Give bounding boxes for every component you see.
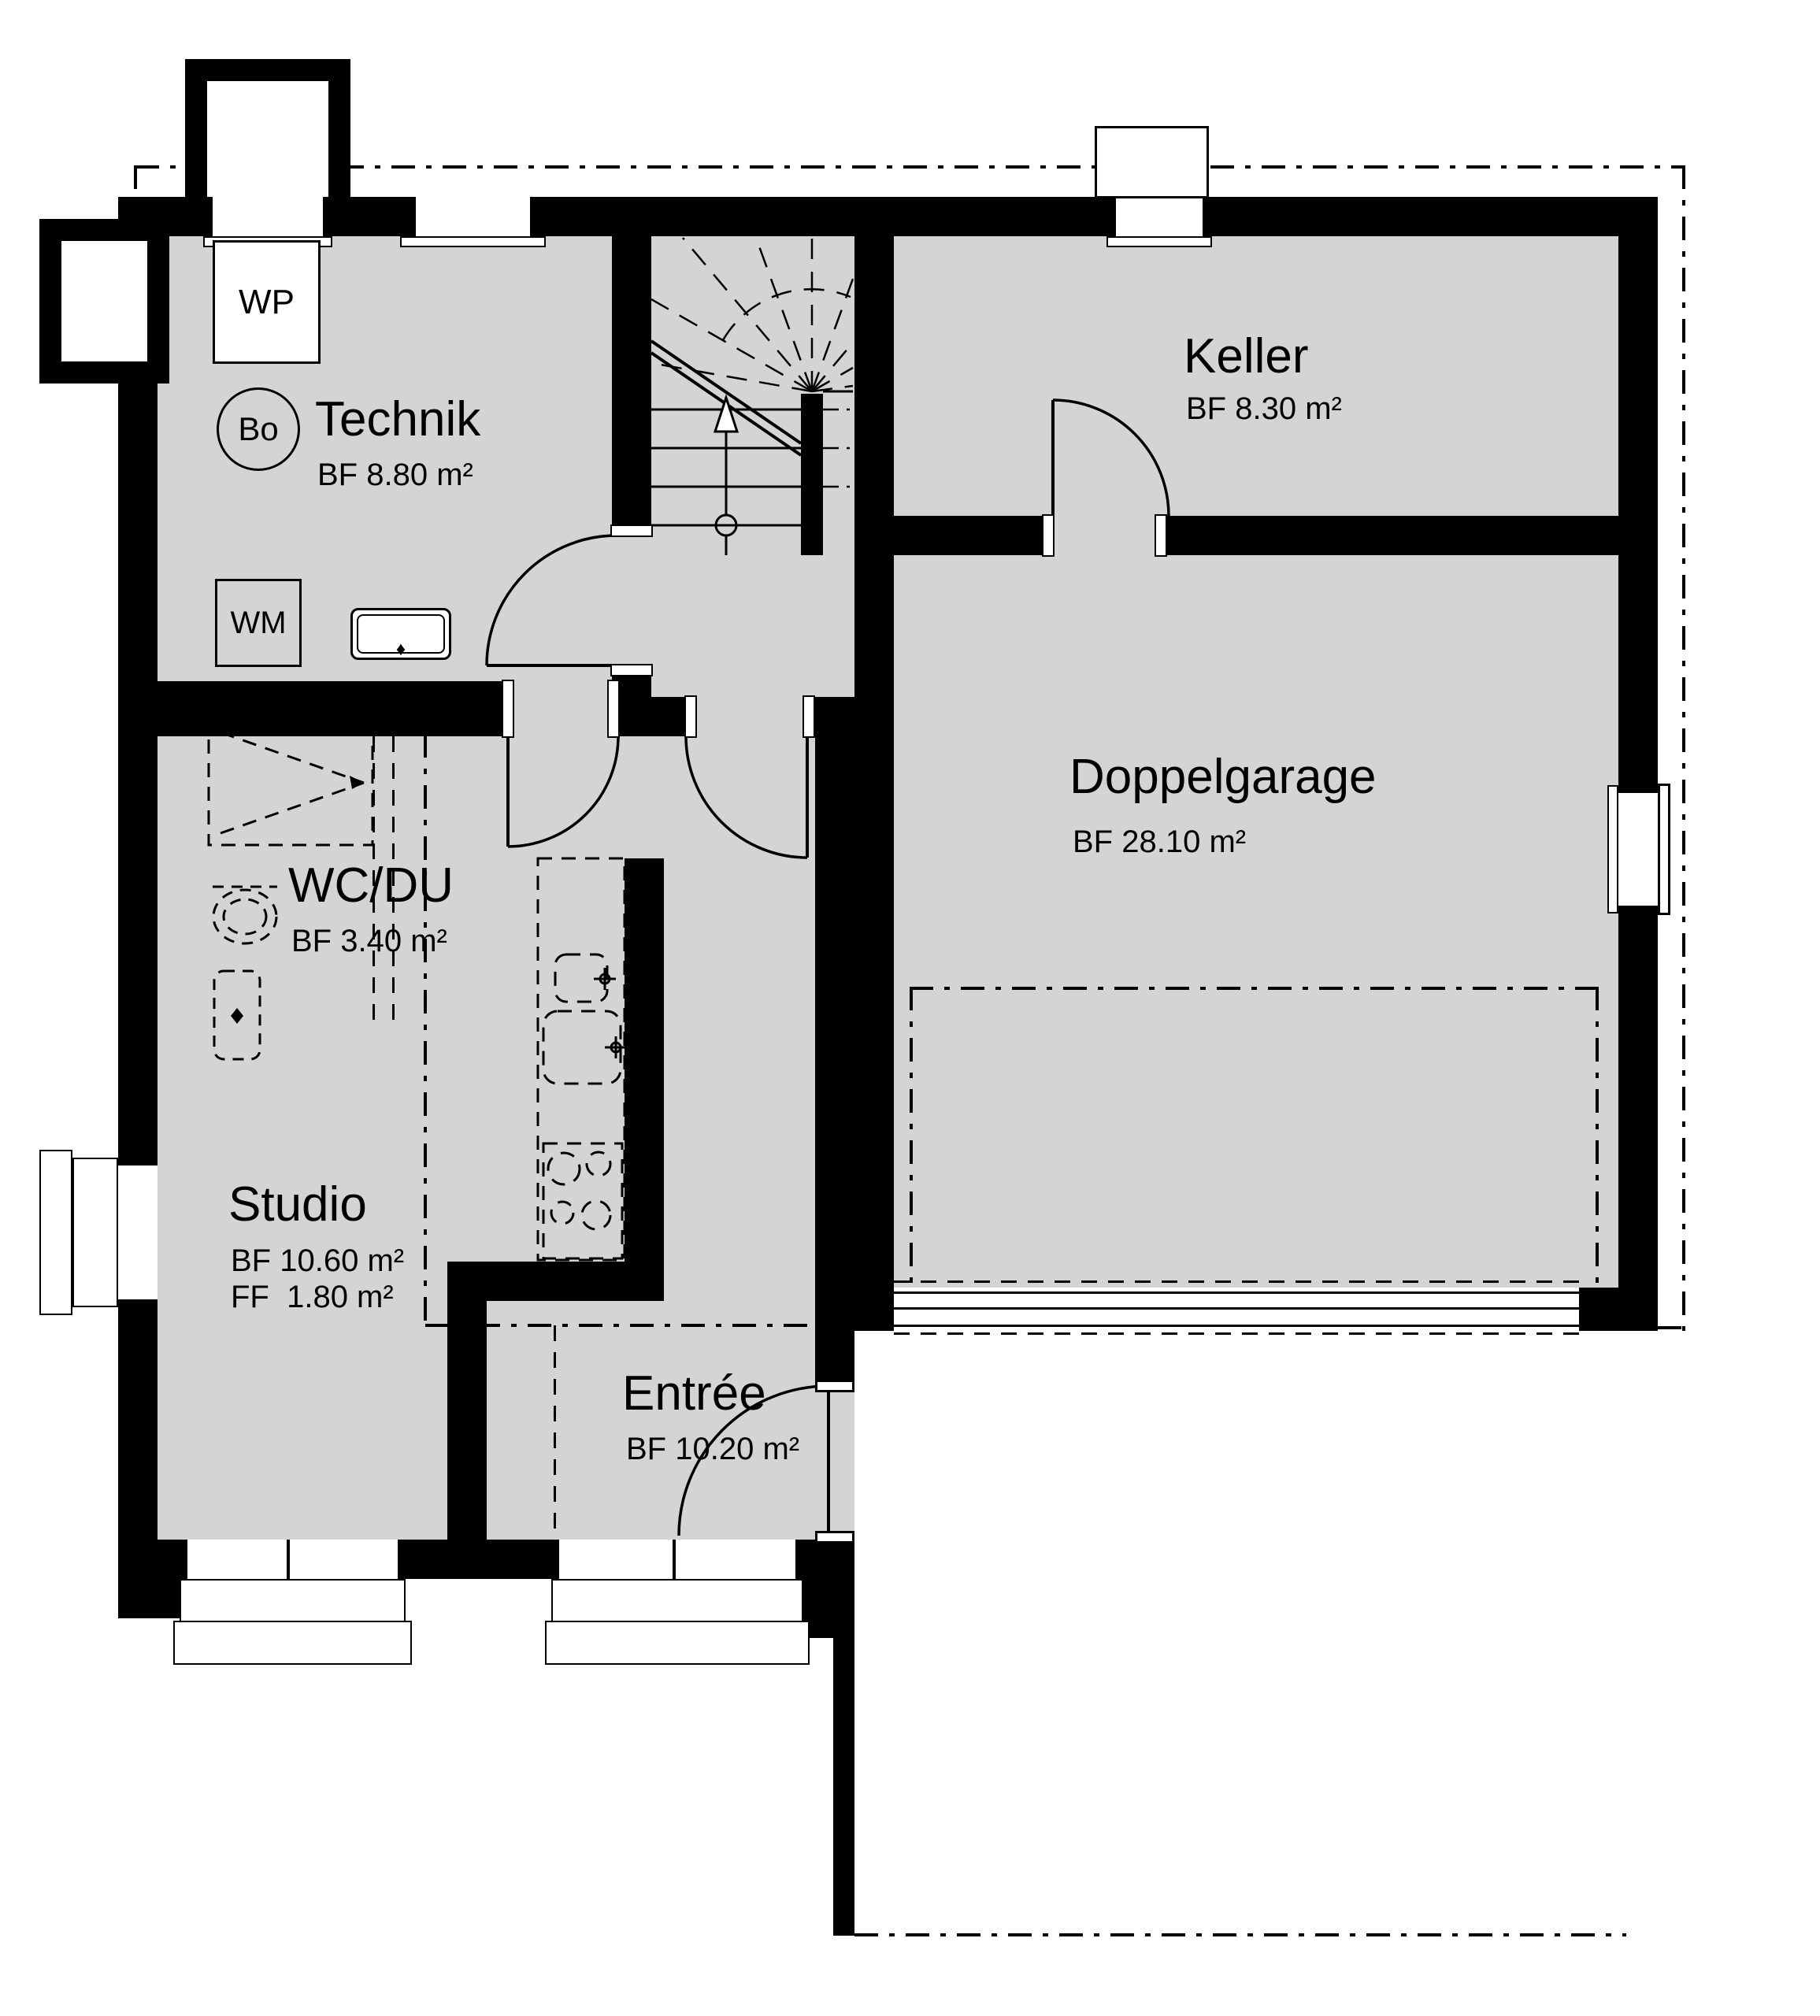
- room-label-studio: Studio: [228, 1177, 367, 1232]
- jamb-keller-right: [1155, 514, 1167, 557]
- window-garage-right: [1618, 793, 1658, 906]
- garage-door-midline: [894, 1307, 1579, 1310]
- window-entree-bottom: [559, 1540, 795, 1579]
- jamb-technik-top: [610, 524, 653, 537]
- room-area-technik: BF 8.80 m²: [317, 457, 473, 493]
- door-arc-keller: [1053, 400, 1169, 516]
- window-studio-left-sill: [72, 1158, 118, 1307]
- jamb-technik-bottom: [610, 664, 653, 676]
- entry-door-jamb-bottom: [815, 1531, 854, 1543]
- window-studio-bottom-mullion: [287, 1540, 290, 1579]
- wall-garage-door-corner: [1579, 1288, 1618, 1331]
- room-label-keller: Keller: [1184, 329, 1309, 384]
- window-stair-top-sill: [400, 236, 546, 247]
- heat-pump-label: WP: [239, 283, 295, 322]
- wall-keller-garage-2: [1158, 516, 1618, 555]
- room-area-studio-ff: FF 1.80 m²: [231, 1279, 394, 1315]
- window-well-keller: [1095, 126, 1209, 198]
- jamb-hall-right: [803, 695, 815, 738]
- wall-right-2: [1618, 906, 1658, 1331]
- wall-top-2: [323, 197, 416, 236]
- wall-stair-technik: [612, 236, 651, 535]
- wall-bottom-corner-left: [118, 1579, 181, 1618]
- wall-left-3: [118, 1299, 158, 1579]
- window-studio-bottom-sill-2: [173, 1621, 412, 1665]
- room-area-keller: BF 8.30 m²: [1186, 391, 1342, 427]
- window-keller-top-sill: [1106, 236, 1212, 247]
- window-studio-bottom-sill-1: [180, 1579, 406, 1623]
- window-stair-top: [416, 197, 530, 236]
- window-studio-left: [118, 1165, 158, 1299]
- window-garage-right-sill: [1607, 785, 1618, 913]
- room-area-studio: BF 10.60 m²: [231, 1243, 404, 1279]
- lightshaft-left-inner: [61, 241, 147, 361]
- wall-right-1: [1618, 197, 1658, 793]
- door-arc-wc: [508, 736, 618, 847]
- washing-machine-label: WM: [230, 606, 286, 641]
- window-entree-bottom-mullion: [673, 1540, 676, 1579]
- stair-winder-lines: [651, 238, 853, 391]
- room-label-wcdu: WC/DU: [288, 858, 454, 913]
- floorplan: WP Bo WM ♦ Technik BF 8.80 m² Keller BF …: [0, 0, 1820, 2016]
- toilet-symbol: [213, 887, 277, 943]
- door-arc-hall: [686, 736, 807, 858]
- jamb-wc-left: [502, 680, 514, 738]
- washbasin-marker: [231, 1008, 243, 1024]
- window-studio-left-outer: [39, 1150, 72, 1315]
- wall-technik-bottom: [118, 681, 508, 736]
- room-area-doppelgarage: BF 28.10 m²: [1073, 824, 1246, 860]
- jamb-hall-left: [684, 695, 697, 738]
- boiler-circle: Bo: [217, 387, 300, 471]
- heat-pump-box: WP: [213, 240, 321, 364]
- room-area-wcdu: BF 3.40 m²: [291, 923, 447, 959]
- wall-driveway-left: [833, 1579, 854, 1936]
- shower-outline: [209, 721, 373, 845]
- window-entree-bottom-sill-1: [551, 1579, 803, 1623]
- jamb-keller-left: [1042, 514, 1055, 557]
- washing-machine-box: WM: [215, 579, 302, 667]
- kitchen-faucets: [594, 968, 627, 1058]
- room-label-technik: Technik: [315, 392, 480, 447]
- boiler-label: Bo: [238, 410, 278, 448]
- entry-door-jamb-top: [815, 1380, 854, 1392]
- room-label-doppelgarage: Doppelgarage: [1069, 750, 1377, 805]
- wall-top-3: [530, 197, 1116, 236]
- wall-bottom-1: [118, 1540, 187, 1579]
- window-entree-bottom-sill-2: [545, 1621, 810, 1665]
- shower-arrow: [350, 776, 364, 789]
- utility-sink-drain-icon: ♦: [396, 640, 406, 659]
- wall-kitchen-side: [625, 858, 664, 1301]
- kitchen-counter: [538, 858, 625, 1260]
- wall-entree-right: [815, 736, 854, 1386]
- wall-top-4: [1203, 197, 1658, 236]
- room-area-entree: BF 10.20 m²: [626, 1431, 799, 1467]
- window-garage-right-outer: [1658, 784, 1670, 915]
- wall-hall-garage: [854, 555, 894, 1331]
- wall-entree-studio: [447, 1262, 487, 1579]
- wall-left-2: [118, 352, 158, 1165]
- jamb-wc-right: [607, 680, 620, 738]
- room-label-entree: Entrée: [622, 1366, 766, 1421]
- window-studio-bottom: [187, 1540, 398, 1579]
- utility-sink: ♦: [350, 608, 451, 660]
- wall-keller-garage-1: [854, 516, 1053, 555]
- stair-winder-dashdot: [823, 409, 853, 487]
- door-arc-technik: [487, 535, 617, 665]
- stair-newel-wall: [801, 394, 823, 555]
- wall-stair-keller: [854, 236, 894, 516]
- garage-door-track-dashed: [894, 1332, 1579, 1335]
- window-technik-top: [213, 197, 323, 236]
- lightshaft-top-inner: [207, 81, 328, 197]
- window-keller-top: [1116, 197, 1203, 236]
- stair-direction-arrow: [715, 398, 737, 432]
